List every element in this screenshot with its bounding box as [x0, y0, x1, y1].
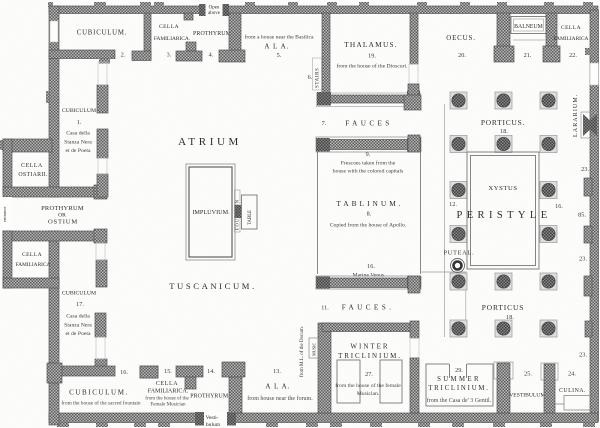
svg-text:16.: 16. [120, 369, 128, 376]
svg-text:Frescoes taken from the: Frescoes taken from the [341, 160, 396, 167]
svg-text:LARARIUM.: LARARIUM. [573, 94, 579, 137]
svg-text:TABLE: TABLE [248, 210, 253, 225]
svg-text:OECUS.: OECUS. [446, 34, 476, 42]
svg-text:14.: 14. [207, 368, 215, 375]
svg-text:PORTICUS: PORTICUS [482, 303, 525, 312]
svg-text:VESTIBULUM.: VESTIBULUM. [509, 393, 547, 399]
svg-text:19.: 19. [368, 53, 376, 60]
svg-text:FAMILIARICA.: FAMILIARICA. [154, 36, 190, 42]
svg-text:FAUCES: FAUCES [345, 120, 392, 128]
svg-text:12.: 12. [449, 201, 457, 208]
svg-text:CUBICULUM: CUBICULUM [62, 291, 96, 297]
svg-text:4.: 4. [209, 52, 214, 59]
svg-text:FAMILIARICA: FAMILIARICA [16, 262, 51, 268]
svg-text:7.: 7. [322, 120, 327, 127]
svg-text:3.: 3. [167, 52, 172, 59]
svg-text:CUBICULUM.: CUBICULUM. [69, 389, 129, 397]
svg-text:PERISTYLE: PERISTYLE [456, 210, 551, 221]
svg-text:22.: 22. [569, 52, 577, 59]
svg-text:CELLA: CELLA [159, 24, 179, 30]
svg-text:Vesti-: Vesti- [205, 415, 218, 421]
svg-text:from house near the forum.: from house near the forum. [247, 395, 313, 402]
svg-text:21.: 21. [524, 52, 532, 59]
svg-text:Stanza Nera: Stanza Nera [64, 140, 92, 146]
svg-text:Open: Open [209, 6, 220, 11]
svg-text:Casa della: Casa della [66, 314, 90, 320]
svg-text:CUBICULUM: CUBICULUM [62, 108, 96, 114]
svg-text:FAMILIARICA: FAMILIARICA [554, 36, 589, 42]
svg-text:CELLA: CELLA [156, 381, 178, 387]
svg-text:IMPLUVIUM.: IMPLUVIUM. [192, 209, 230, 216]
svg-text:23.: 23. [579, 256, 587, 263]
svg-text:23.: 23. [579, 352, 587, 359]
svg-text:et de Poeta: et de Poeta [66, 148, 91, 154]
svg-text:PROTHYRUM: PROTHYRUM [193, 31, 232, 37]
svg-text:1.: 1. [77, 119, 82, 126]
svg-text:from M.L. of the Docum.: from M.L. of the Docum. [300, 326, 305, 377]
svg-text:CELLA: CELLA [22, 252, 42, 258]
svg-text:18.: 18. [500, 128, 508, 135]
svg-text:8.: 8. [367, 211, 372, 218]
svg-text:CELLA: CELLA [561, 25, 581, 31]
svg-text:PROTHYRUM: PROTHYRUM [41, 205, 84, 212]
svg-text:from a house near the Basilica: from a house near the Basilica [244, 34, 313, 41]
svg-text:23.: 23. [581, 166, 589, 173]
svg-text:6.: 6. [308, 74, 313, 81]
svg-text:from the house of the female: from the house of the female [335, 382, 401, 389]
svg-text:et de Poeta: et de Poeta [66, 331, 91, 337]
svg-text:29.: 29. [455, 367, 463, 374]
svg-text:house with the colored capital: house with the colored capitals [333, 169, 404, 175]
svg-text:STAIRS: STAIRS [316, 68, 321, 88]
svg-text:WINTER: WINTER [350, 343, 389, 351]
svg-text:FAMILIARICA.: FAMILIARICA. [148, 389, 189, 395]
svg-text:PROTHYRUM.: PROTHYRUM. [190, 394, 230, 400]
svg-text:SUMMER: SUMMER [437, 376, 481, 383]
svg-text:9.: 9. [366, 151, 371, 158]
svg-text:above: above [208, 11, 221, 16]
svg-text:11.: 11. [321, 305, 329, 312]
svg-text:CELLA: CELLA [21, 163, 43, 169]
svg-text:27.: 27. [365, 371, 373, 378]
svg-text:entrance: entrance [2, 206, 7, 222]
svg-text:Female Musician: Female Musician [150, 402, 186, 408]
svg-text:Musician.: Musician. [357, 391, 380, 397]
svg-text:ATRIUM: ATRIUM [178, 136, 242, 148]
svg-text:BALNEUM: BALNEUM [514, 24, 543, 30]
svg-text:TRICLINIUM.: TRICLINIUM. [428, 385, 490, 392]
svg-text:Marine Venus.: Marine Venus. [352, 273, 386, 279]
svg-text:20.: 20. [458, 52, 466, 59]
svg-text:PUTEAL.: PUTEAL. [444, 250, 475, 257]
svg-text:THALAMUS.: THALAMUS. [344, 40, 398, 49]
svg-text:CUBICULUM.: CUBICULUM. [77, 30, 127, 37]
svg-text:A L A.: A L A. [265, 383, 290, 391]
svg-text:A L A.: A L A. [264, 43, 289, 51]
svg-text:13.: 13. [273, 368, 281, 375]
svg-text:25.: 25. [524, 371, 532, 378]
svg-text:16.: 16. [555, 203, 563, 210]
svg-text:TUSCANICUM.: TUSCANICUM. [169, 281, 257, 291]
svg-text:from the Casa de' 3 Gentil.: from the Casa de' 3 Gentil. [427, 397, 492, 404]
svg-text:CULINA.: CULINA. [559, 388, 586, 394]
svg-text:OSTIARII.: OSTIARII. [18, 172, 48, 178]
svg-text:XYSTUS: XYSTUS [488, 185, 517, 192]
svg-text:16.: 16. [367, 263, 375, 270]
svg-text:Copied from the house of Apoll: Copied from the house of Apollo. [330, 222, 407, 229]
svg-text:OSTIUM: OSTIUM [48, 219, 78, 226]
svg-text:Casa della: Casa della [66, 131, 90, 137]
svg-text:15.: 15. [164, 368, 172, 375]
svg-text:MUSIC: MUSIC [312, 343, 317, 356]
svg-text:24.: 24. [568, 371, 576, 378]
svg-text:PORTICUS.: PORTICUS. [481, 118, 525, 127]
svg-text:from the house of the sacred f: from the house of the sacred fountain [61, 400, 140, 407]
svg-text:TABLINUM.: TABLINUM. [336, 199, 403, 208]
svg-text:bulum: bulum [206, 422, 221, 428]
svg-text:Stanza Nera: Stanza Nera [64, 323, 92, 329]
svg-text:from the house of the: from the house of the [145, 395, 189, 402]
svg-text:17.: 17. [76, 301, 84, 308]
svg-text:85.: 85. [578, 212, 586, 219]
svg-text:FAUCES.: FAUCES. [342, 304, 395, 312]
svg-text:from the house of the Dioscuri: from the house of the Dioscuri. [336, 63, 408, 70]
svg-text:TRICLINIUM.: TRICLINIUM. [338, 352, 402, 360]
svg-text:2.: 2. [121, 52, 126, 59]
svg-text:5.: 5. [277, 52, 282, 59]
